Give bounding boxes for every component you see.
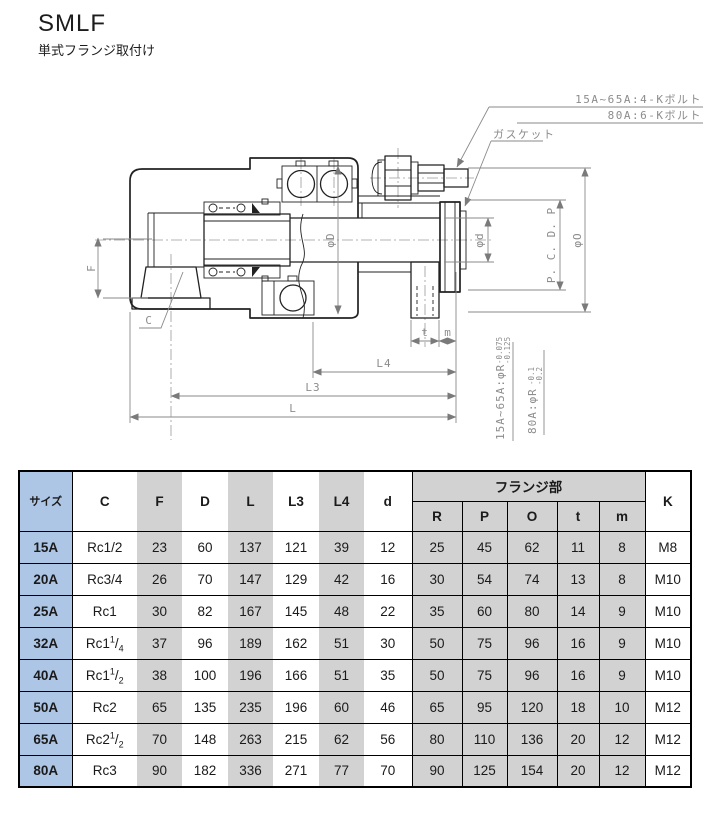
cell-o: 96 [507, 627, 557, 659]
cell-c: Rc11/2 [72, 659, 137, 691]
header-c: C [72, 471, 137, 531]
bolt-note-line2: 80A:6-Kボルト [608, 109, 702, 122]
cell-l3: 166 [273, 659, 319, 691]
header-l: L [228, 471, 273, 531]
cell-t: 16 [557, 627, 599, 659]
gasket-note: ガスケット [465, 128, 556, 206]
header-r: R [412, 501, 462, 531]
cell-l3: 196 [273, 691, 319, 723]
dim-label-f: F [85, 264, 98, 272]
cell-c: Rc2 [72, 691, 137, 723]
cell-c: Rc3/4 [72, 563, 137, 595]
dim-label-m: m [444, 326, 452, 339]
cell-d: 56 [364, 723, 412, 755]
cell-r: 25 [412, 531, 462, 563]
cell-p: 60 [462, 595, 507, 627]
header-o: O [507, 501, 557, 531]
dim-L: L [130, 272, 456, 423]
cell-f: 26 [137, 563, 182, 595]
cell-o: 154 [507, 755, 557, 787]
cell-f: 70 [137, 723, 182, 755]
header-p: P [462, 501, 507, 531]
header-l3: L3 [273, 471, 319, 531]
cell-f: 90 [137, 755, 182, 787]
cell-k: M8 [645, 531, 691, 563]
cell-c: Rc1/2 [72, 531, 137, 563]
table-row: 20A Rc3/4 26 70 147 129 42 16 30 54 74 1… [19, 563, 691, 595]
cell-l3: 215 [273, 723, 319, 755]
dim-m: m [439, 326, 456, 341]
cell-l: 263 [228, 723, 273, 755]
cell-d: 70 [364, 755, 412, 787]
cell-m: 9 [599, 627, 645, 659]
cell-p: 95 [462, 691, 507, 723]
cell-m: 9 [599, 659, 645, 691]
cell-t: 14 [557, 595, 599, 627]
cell-d: 30 [364, 627, 412, 659]
dim-label-phid: φd [473, 232, 486, 247]
tol2-lower: -0.2 [535, 367, 544, 385]
rotor-shaft [204, 214, 440, 318]
cell-k: M12 [645, 755, 691, 787]
cell-l: 336 [228, 755, 273, 787]
cell-size: 80A [19, 755, 72, 787]
cell-l4: 39 [319, 531, 364, 563]
dim-label-t: t [421, 326, 429, 339]
cell-l4: 51 [319, 627, 364, 659]
cell-k: M12 [645, 691, 691, 723]
cell-d-outer: 182 [182, 755, 228, 787]
cell-l: 167 [228, 595, 273, 627]
cell-f: 65 [137, 691, 182, 723]
cell-size: 32A [19, 627, 72, 659]
cell-c: Rc3 [72, 755, 137, 787]
cell-l3: 121 [273, 531, 319, 563]
dim-label-l: L [289, 402, 297, 415]
cell-m: 9 [599, 595, 645, 627]
table-row: 50A Rc2 65 135 235 196 60 46 65 95 120 1… [19, 691, 691, 723]
cell-size: 50A [19, 691, 72, 723]
cell-d: 46 [364, 691, 412, 723]
cell-k: M10 [645, 659, 691, 691]
bearing-block-upper [277, 161, 357, 202]
cell-d-outer: 148 [182, 723, 228, 755]
tol1-lower: -0.125 [503, 337, 512, 364]
cell-l4: 42 [319, 563, 364, 595]
cell-l4: 51 [319, 659, 364, 691]
cell-m: 10 [599, 691, 645, 723]
cell-r: 50 [412, 627, 462, 659]
bearing-block-lower [262, 276, 314, 315]
spec-sheet: SMLF 単式フランジ取付け [0, 0, 708, 813]
cell-l3: 271 [273, 755, 319, 787]
cell-d-outer: 82 [182, 595, 228, 627]
cell-k: M12 [645, 723, 691, 755]
dim-L3: L3 [171, 381, 456, 396]
table-row: 80A Rc3 90 182 336 271 77 70 90 125 154 … [19, 755, 691, 787]
cell-l4: 48 [319, 595, 364, 627]
dim-C: C [139, 272, 183, 328]
header-d-outer: D [182, 471, 228, 531]
header-size: サイズ [19, 471, 72, 531]
tolerance-note-1: 15A~65A:φR -0.075 -0.125 [494, 337, 513, 441]
cell-t: 18 [557, 691, 599, 723]
cell-p: 110 [462, 723, 507, 755]
cell-k: M10 [645, 595, 691, 627]
table-row: 15A Rc1/2 23 60 137 121 39 12 25 45 62 1… [19, 531, 691, 563]
cell-t: 11 [557, 531, 599, 563]
dim-phiD: φD [324, 166, 338, 314]
cell-d-outer: 135 [182, 691, 228, 723]
tol2-prefix: 80A:φR [526, 388, 539, 434]
dim-L4: L4 [313, 322, 456, 378]
cell-d-outer: 100 [182, 659, 228, 691]
cell-d: 12 [364, 531, 412, 563]
cell-p: 125 [462, 755, 507, 787]
technical-drawing: 15A~65A:4-Kボルト 80A:6-Kボルト ガスケット 15A~65A:… [0, 0, 708, 462]
header-t: t [557, 501, 599, 531]
cell-l: 235 [228, 691, 273, 723]
tol1-prefix: 15A~65A:φR [494, 364, 507, 440]
cell-m: 8 [599, 531, 645, 563]
cell-f: 30 [137, 595, 182, 627]
cell-c: Rc11/4 [72, 627, 137, 659]
header-row-1: サイズ C F D L L3 L4 d フランジ部 K [19, 471, 691, 501]
cell-f: 38 [137, 659, 182, 691]
cell-p: 45 [462, 531, 507, 563]
cell-size: 25A [19, 595, 72, 627]
cell-l: 147 [228, 563, 273, 595]
break-line [299, 214, 305, 318]
cell-l4: 77 [319, 755, 364, 787]
cell-l: 196 [228, 659, 273, 691]
cell-r: 90 [412, 755, 462, 787]
cell-t: 20 [557, 755, 599, 787]
cell-c: Rc21/2 [72, 723, 137, 755]
cell-l3: 162 [273, 627, 319, 659]
cell-l4: 62 [319, 723, 364, 755]
cell-d: 16 [364, 563, 412, 595]
cell-r: 50 [412, 659, 462, 691]
cell-o: 120 [507, 691, 557, 723]
gasket-label: ガスケット [493, 128, 556, 141]
housing-body [130, 158, 411, 318]
cell-o: 136 [507, 723, 557, 755]
dim-label-c: C [145, 314, 153, 327]
cell-p: 75 [462, 627, 507, 659]
dimension-table: サイズ C F D L L3 L4 d フランジ部 K R P O t m 15… [18, 470, 692, 788]
cell-m: 12 [599, 755, 645, 787]
header-f: F [137, 471, 182, 531]
cell-d: 22 [364, 595, 412, 627]
header-m: m [599, 501, 645, 531]
cell-f: 23 [137, 531, 182, 563]
cell-r: 80 [412, 723, 462, 755]
table-row: 65A Rc21/2 70 148 263 215 62 56 80 110 1… [19, 723, 691, 755]
cell-f: 37 [137, 627, 182, 659]
cell-size: 15A [19, 531, 72, 563]
seal-upper [204, 199, 280, 215]
dim-label-pcdp: P. C. D. P [545, 207, 558, 283]
cell-p: 75 [462, 659, 507, 691]
cell-size: 40A [19, 659, 72, 691]
header-l4: L4 [319, 471, 364, 531]
cell-l4: 60 [319, 691, 364, 723]
table-row: 32A Rc11/4 37 96 189 162 51 30 50 75 96 … [19, 627, 691, 659]
header-k: K [645, 471, 691, 531]
cell-l: 137 [228, 531, 273, 563]
seal-lower [204, 265, 280, 281]
cell-r: 35 [412, 595, 462, 627]
cell-m: 12 [599, 723, 645, 755]
cell-o: 80 [507, 595, 557, 627]
cell-l3: 145 [273, 595, 319, 627]
cell-t: 16 [557, 659, 599, 691]
dim-label-phiD: φD [324, 232, 337, 247]
cell-o: 74 [507, 563, 557, 595]
cell-k: M10 [645, 563, 691, 595]
dim-label-l3: L3 [305, 381, 320, 394]
cell-o: 96 [507, 659, 557, 691]
cell-d-outer: 96 [182, 627, 228, 659]
cell-size: 20A [19, 563, 72, 595]
table-row: 40A Rc11/2 38 100 196 166 51 35 50 75 96… [19, 659, 691, 691]
cell-t: 20 [557, 723, 599, 755]
cell-o: 62 [507, 531, 557, 563]
cell-p: 54 [462, 563, 507, 595]
tolerance-note-2: 80A:φR -0.1 -0.2 [526, 350, 544, 435]
cell-d-outer: 60 [182, 531, 228, 563]
cell-l: 189 [228, 627, 273, 659]
cell-d-outer: 70 [182, 563, 228, 595]
cell-t: 13 [557, 563, 599, 595]
header-d: d [364, 471, 412, 531]
flange-plate [440, 202, 460, 292]
cell-r: 65 [412, 691, 462, 723]
cell-l3: 129 [273, 563, 319, 595]
cell-d: 35 [364, 659, 412, 691]
cell-k: M10 [645, 627, 691, 659]
bolt-note-line1: 15A~65A:4-Kボルト [575, 93, 702, 106]
cell-r: 30 [412, 563, 462, 595]
cell-m: 8 [599, 563, 645, 595]
header-flange-group: フランジ部 [412, 471, 645, 501]
cell-size: 65A [19, 723, 72, 755]
flange-arm [358, 196, 440, 218]
table-row: 25A Rc1 30 82 167 145 48 22 35 60 80 14 … [19, 595, 691, 627]
dim-label-phiO: φO [571, 232, 584, 247]
cell-c: Rc1 [72, 595, 137, 627]
dim-label-l4: L4 [376, 357, 391, 370]
